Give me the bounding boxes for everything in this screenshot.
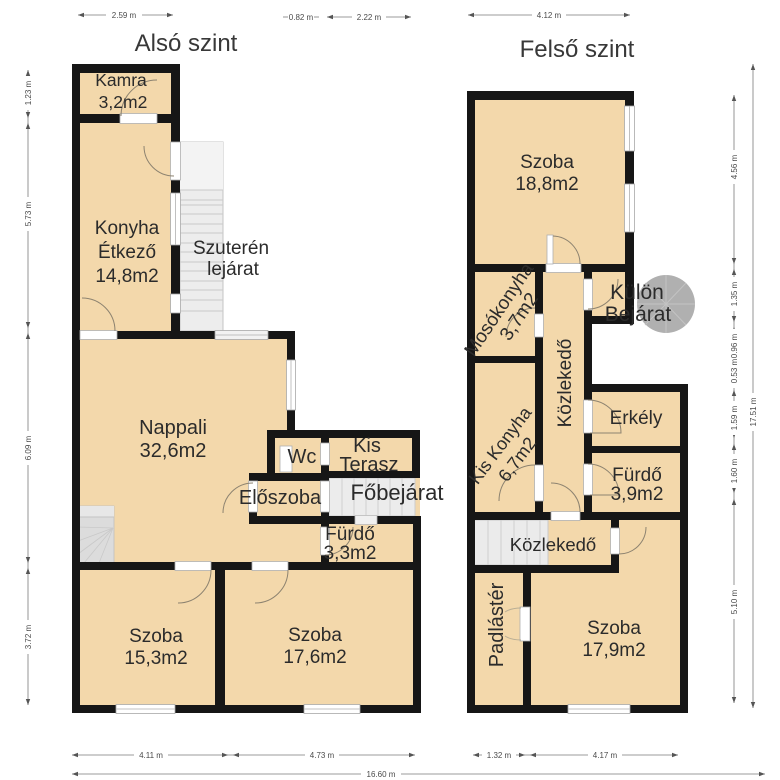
svg-text:Szuterén: Szuterén — [193, 238, 269, 259]
svg-text:Étkező: Étkező — [98, 242, 156, 263]
svg-text:15,3m2: 15,3m2 — [124, 648, 187, 669]
svg-text:Szoba: Szoba — [587, 618, 641, 639]
svg-text:Szoba: Szoba — [520, 152, 574, 173]
svg-text:4.12 m: 4.12 m — [537, 11, 562, 20]
svg-text:4.56 m: 4.56 m — [730, 154, 739, 179]
svg-text:3,9m2: 3,9m2 — [611, 484, 664, 505]
svg-text:Szoba: Szoba — [288, 625, 342, 646]
svg-text:2.22 m: 2.22 m — [357, 13, 382, 22]
svg-text:17,6m2: 17,6m2 — [283, 647, 346, 668]
svg-text:Alsó szint: Alsó szint — [135, 30, 238, 57]
svg-text:16.60 m: 16.60 m — [367, 770, 396, 779]
svg-text:Konyha: Konyha — [95, 218, 160, 239]
svg-text:Kamra: Kamra — [95, 70, 147, 90]
svg-text:Fürdő: Fürdő — [612, 465, 662, 486]
svg-text:Nappali: Nappali — [139, 417, 207, 439]
svg-text:5.73 m: 5.73 m — [24, 201, 33, 226]
svg-text:Külön: Külön — [610, 281, 664, 304]
svg-text:1.60 m: 1.60 m — [730, 458, 739, 483]
svg-text:4.73 m: 4.73 m — [310, 751, 335, 760]
svg-text:3,2m2: 3,2m2 — [99, 92, 148, 112]
svg-text:17,9m2: 17,9m2 — [582, 640, 645, 661]
svg-text:5.10 m: 5.10 m — [730, 589, 739, 614]
svg-text:Bejárat: Bejárat — [605, 303, 672, 326]
svg-text:18,8m2: 18,8m2 — [515, 174, 578, 195]
svg-text:0.82 m: 0.82 m — [289, 13, 314, 22]
svg-text:Wc: Wc — [288, 446, 317, 468]
svg-text:Szoba: Szoba — [129, 626, 183, 647]
svg-text:1.32 m: 1.32 m — [487, 751, 512, 760]
svg-text:0.96 m: 0.96 m — [730, 333, 739, 358]
svg-text:4.11 m: 4.11 m — [139, 751, 163, 760]
svg-text:1.59 m: 1.59 m — [730, 405, 739, 430]
svg-text:1.35 m: 1.35 m — [730, 281, 739, 306]
svg-text:Előszoba: Előszoba — [239, 487, 322, 509]
svg-text:Erkély: Erkély — [610, 408, 663, 429]
svg-text:Közlekedő: Közlekedő — [510, 534, 596, 555]
svg-text:1.23 m: 1.23 m — [24, 80, 33, 105]
svg-text:lejárat: lejárat — [207, 259, 259, 280]
svg-text:Terasz: Terasz — [340, 454, 399, 476]
svg-text:6.09 m: 6.09 m — [24, 435, 33, 460]
svg-text:17.51 m: 17.51 m — [749, 397, 758, 426]
svg-text:Padlástér: Padlástér — [486, 582, 508, 667]
svg-text:0.53 m: 0.53 m — [730, 358, 739, 383]
svg-text:2.59 m: 2.59 m — [112, 11, 137, 20]
svg-text:Felső szint: Felső szint — [520, 36, 635, 63]
svg-text:3,3m2: 3,3m2 — [324, 543, 377, 564]
svg-text:4.17 m: 4.17 m — [593, 751, 618, 760]
svg-text:Közlekedő: Közlekedő — [555, 339, 576, 428]
svg-text:14,8m2: 14,8m2 — [95, 266, 158, 287]
svg-text:Fürdő: Fürdő — [325, 524, 375, 545]
svg-text:32,6m2: 32,6m2 — [140, 440, 207, 462]
svg-text:3.72 m: 3.72 m — [24, 624, 33, 649]
svg-text:Főbejárat: Főbejárat — [351, 480, 444, 505]
